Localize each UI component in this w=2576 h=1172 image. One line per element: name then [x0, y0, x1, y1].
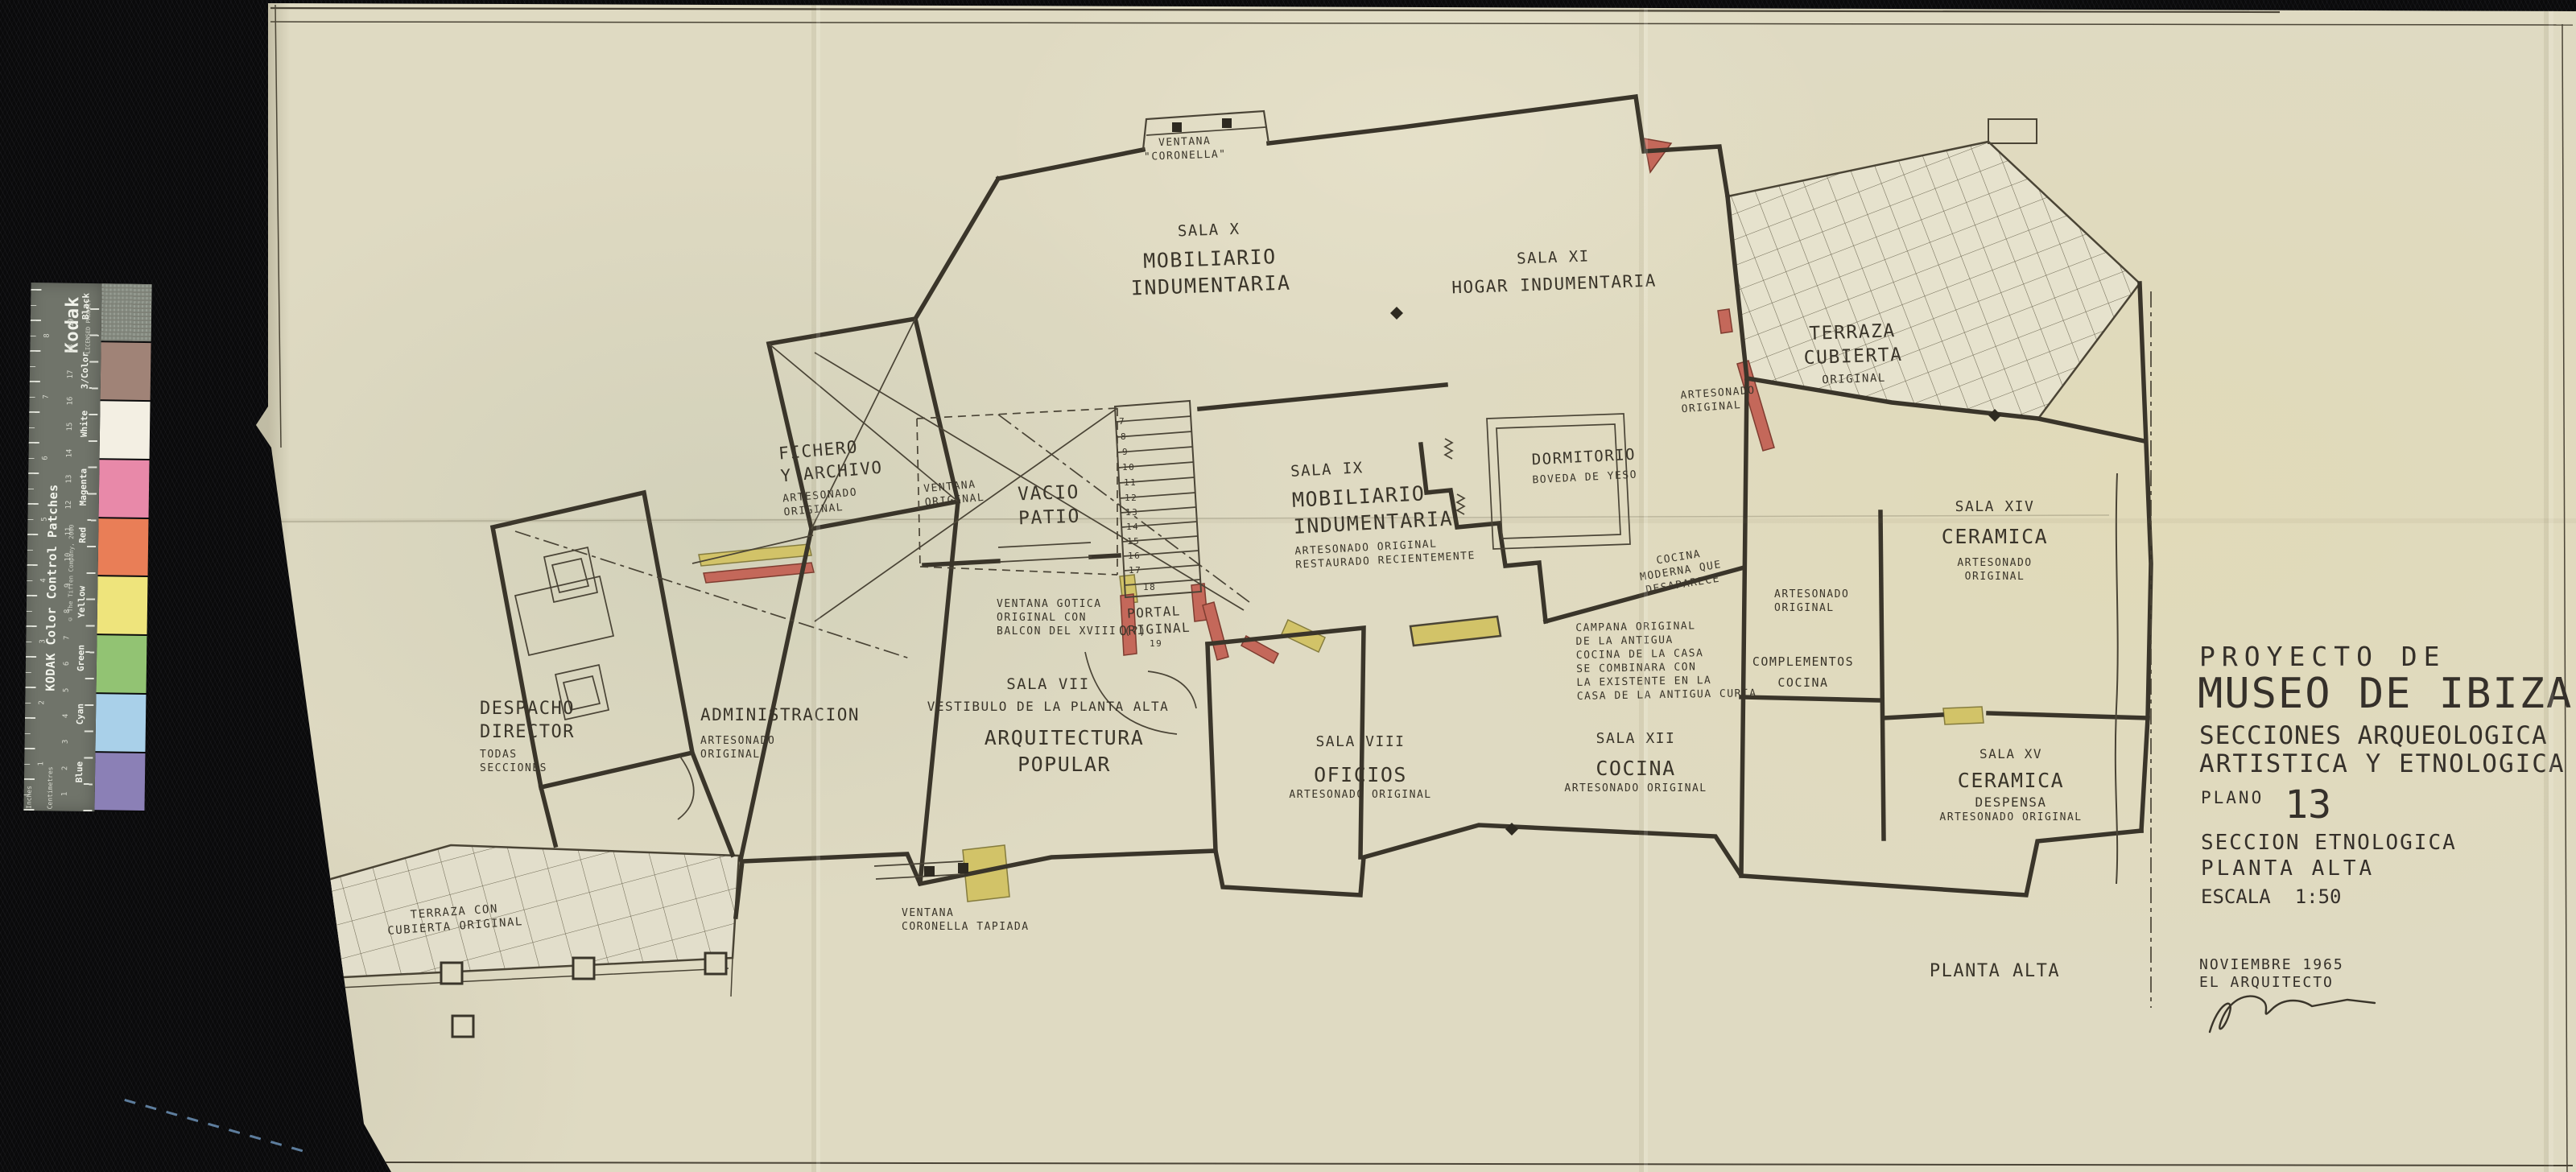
kodak-patch-label: Yellow [76, 586, 88, 618]
inch-number: 6 [42, 456, 50, 460]
title-block: PROYECTO DE MUSEO DE IBIZA SECCIONES ARQ… [0, 0, 2576, 1172]
cm-number: 14 [66, 448, 74, 457]
kodak-patch-yellow [97, 577, 147, 635]
kodak-patch-label: 3/Color [80, 352, 91, 390]
section-line2: PLANTA ALTA [2201, 856, 2375, 881]
kodak-ruler: Kodak LICENSED PRODUCT KODAK Color Contr… [23, 283, 101, 811]
cm-number: 12 [65, 501, 73, 510]
cm-number: 1 [61, 792, 69, 797]
inches-label: Inches [25, 786, 32, 809]
plano-number: 13 [2285, 782, 2331, 827]
cm-number: 19 [68, 318, 76, 327]
architect-signature [2190, 984, 2415, 1048]
inch-number: 3 [39, 639, 47, 644]
kodak-patch-black [101, 283, 152, 341]
plano-row: PLANO13 [2201, 782, 2331, 827]
kodak-patch-green [96, 636, 147, 694]
inch-number: 5 [40, 517, 48, 522]
project-line1: PROYECTO DE [2199, 641, 2446, 672]
project-line2: MUSEO DE IBIZA [2198, 670, 2573, 718]
cm-number: 15 [66, 423, 74, 431]
cm-number: 16 [66, 396, 74, 405]
centimetres-label: Centimetres [46, 766, 54, 809]
cm-number: 7 [63, 635, 71, 640]
kodak-patch-white [100, 401, 151, 459]
cm-number: 3 [62, 740, 70, 745]
project-line3: SECCIONES ARQUEOLOGICA [2199, 721, 2548, 750]
scan-stage: Kodak LICENSED PRODUCT KODAK Color Contr… [0, 0, 2576, 1172]
kodak-patch-red [98, 518, 149, 576]
kodak-patch-label: Green [76, 645, 86, 671]
kodak-patches [94, 283, 151, 812]
cm-number: 11 [64, 526, 72, 535]
escala-value: 1:50 [2295, 885, 2342, 908]
kodak-patch-label: Cyan [75, 703, 85, 724]
escala-row: ESCALA1:50 [2201, 885, 2342, 908]
kodak-patch-magenta [99, 460, 150, 518]
kodak-patch-label: Red [77, 527, 88, 543]
inch-number: 4 [39, 578, 47, 583]
section-line1: SECCION ETNOLOGICA [2201, 831, 2457, 855]
kodak-patch-label: White [79, 410, 89, 436]
cm-number: 18 [67, 345, 75, 353]
project-line4: ARTISTICA Y ETNOLOGICA [2199, 749, 2566, 778]
escala-label: ESCALA [2201, 885, 2271, 908]
inch-number: 8 [43, 333, 52, 338]
cm-number: 9 [64, 584, 72, 588]
kodak-patch-3-color [101, 342, 151, 400]
kodak-patch-cyan [95, 694, 146, 752]
inch-number: 1 [37, 761, 45, 766]
cm-number: 17 [67, 370, 75, 379]
kodak-color-strip: Kodak LICENSED PRODUCT KODAK Color Contr… [23, 283, 151, 812]
kodak-copyright: © The Tiffen Company, 2000 [67, 525, 76, 623]
cm-number: 13 [65, 475, 73, 484]
inch-number: 2 [38, 700, 46, 705]
kodak-patch-blue [94, 753, 145, 811]
drawing-sheet: VENTANA"CORONELLA"SALA XMOBILIARIOINDUME… [0, 0, 2576, 1172]
cm-number: 2 [61, 766, 69, 770]
cm-number: 4 [62, 714, 70, 719]
kodak-patch-label: Blue [74, 761, 85, 783]
fabric-stitch-line [124, 1099, 311, 1154]
kodak-patch-label: Black [80, 293, 91, 320]
date-label: NOVIEMBRE 1965 [2199, 956, 2344, 973]
cm-number: 8 [64, 609, 72, 614]
plano-label: PLANO [2201, 788, 2264, 807]
cm-number: 6 [63, 662, 71, 666]
kodak-title: KODAK Color Control Patches [43, 484, 61, 691]
cm-number: 5 [62, 687, 70, 692]
inch-number: 7 [43, 394, 51, 399]
kodak-patch-label: Magenta [78, 468, 89, 506]
cm-number: 10 [64, 553, 72, 562]
